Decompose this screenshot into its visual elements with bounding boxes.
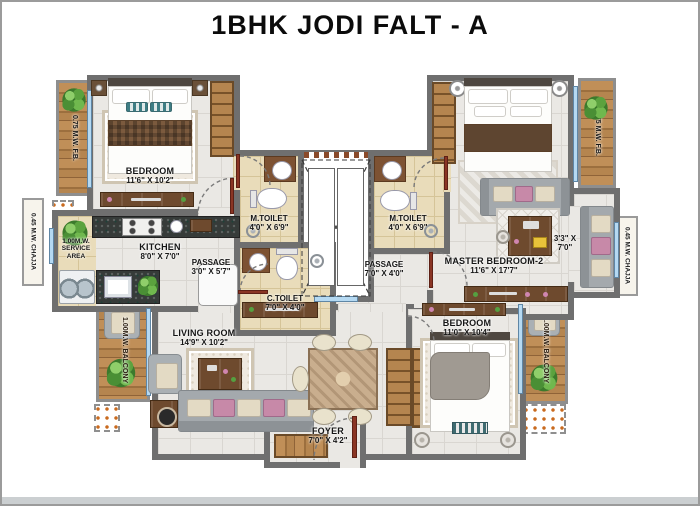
plant-icon	[136, 274, 160, 298]
window	[614, 222, 619, 278]
accent-pillow	[150, 102, 172, 112]
nightstand	[91, 80, 107, 96]
window	[573, 86, 578, 182]
kitchen-bowl	[170, 220, 183, 233]
wardrobe	[210, 81, 234, 157]
bedroom-2-label: BEDROOM 11'0" X 10'4"	[422, 318, 512, 338]
dining-chair	[292, 366, 309, 392]
foyer-label: FOYER 7'0" X 4'2"	[294, 426, 362, 446]
m-toilet-right-label: M.TOILET 4'0" X 6'9"	[372, 214, 444, 232]
balcony-left-label: 1.00M.W. BALCONY	[110, 302, 138, 398]
dining-table	[308, 348, 378, 410]
pillow	[474, 106, 506, 117]
ac-unit-box	[522, 404, 566, 434]
bed-headboard	[464, 78, 552, 86]
toilet-tank	[276, 248, 298, 255]
bed-bench	[452, 422, 488, 434]
window	[87, 90, 92, 188]
bed-blanket	[108, 120, 192, 146]
armchair	[148, 354, 182, 394]
low-console	[464, 286, 568, 302]
window	[518, 304, 523, 394]
pillow	[510, 89, 548, 104]
master-bedroom-2-label: MASTER BEDROOM-2 11'6" X 17'7"	[432, 256, 556, 276]
nook-couch	[580, 206, 614, 288]
washing-machine-icon	[59, 270, 95, 304]
bedroom-1-label: BEDROOM 11'6" X 10'2"	[98, 166, 202, 186]
coffee-table	[198, 358, 242, 390]
toilet-wc	[380, 190, 410, 211]
top-console	[422, 303, 506, 316]
pillow	[510, 106, 542, 117]
side-table	[150, 400, 178, 428]
nook-label: 3'3" X 7'0"	[546, 234, 584, 252]
dining-chair	[312, 334, 336, 351]
nightstand-lamp	[551, 80, 568, 97]
floorplan-canvas: 1BHK JODI FALT - A 0.75 M.W. F.B. 0.45 M…	[0, 0, 700, 506]
wall	[264, 462, 340, 468]
sink	[104, 276, 132, 298]
door-arc	[198, 178, 234, 214]
chajja-left: 0.45 M.W. CHAJJA	[22, 198, 44, 286]
toilet-tank	[410, 192, 417, 210]
pouf	[500, 432, 516, 448]
vanity	[374, 156, 406, 182]
plant-icon	[60, 86, 88, 114]
door-arc	[240, 264, 268, 292]
plant-icon	[582, 94, 610, 122]
chajja-right-label: 0.45 M.W. CHAJJA	[618, 218, 636, 294]
accent-pillow	[126, 102, 148, 112]
bottom-frame-band	[2, 497, 698, 504]
stool	[496, 230, 510, 244]
service-area-label: 1.00M.W. SERVICE AREA	[54, 238, 98, 260]
stove-icon	[122, 218, 162, 236]
passage-1-label: PASSAGE 3'0" X 5'7"	[182, 258, 240, 276]
bed-headboard	[108, 78, 192, 86]
shower-icon	[310, 254, 324, 268]
bookshelf	[386, 348, 412, 426]
c-toilet-label: C.TOILET 7'0" X 4'0"	[252, 294, 318, 312]
ac-unit-box	[94, 404, 120, 432]
dining-chair	[348, 334, 372, 351]
bed-blanket	[464, 124, 552, 152]
door-arc	[414, 158, 444, 188]
living-room-label: LIVING ROOM 14'9" X 10'2"	[154, 328, 254, 348]
door-leaf	[230, 178, 234, 214]
toilet-wc	[257, 188, 287, 209]
opening-patch	[338, 303, 406, 312]
passage-2-label: PASSAGE 7'0" X 4'0"	[346, 260, 422, 278]
dresser-console	[100, 192, 194, 207]
pouf	[414, 432, 430, 448]
spice-box	[190, 219, 212, 232]
door-arc	[240, 156, 270, 186]
door-leaf	[444, 156, 448, 190]
door-leaf	[236, 154, 240, 188]
toilet-tank	[250, 190, 257, 208]
nightstand	[192, 80, 208, 96]
page-title: 1BHK JODI FALT - A	[2, 10, 698, 41]
kitchen-counter	[92, 216, 240, 238]
toilet-wc	[276, 256, 298, 280]
chajja-left-label: 0.45 M.W. CHAJJA	[24, 200, 42, 284]
lift-car	[308, 168, 335, 286]
m-toilet-left-label: M.TOILET 4'0" X 6'9"	[236, 214, 302, 232]
pillow	[468, 89, 508, 104]
bed-blanket	[430, 352, 490, 400]
